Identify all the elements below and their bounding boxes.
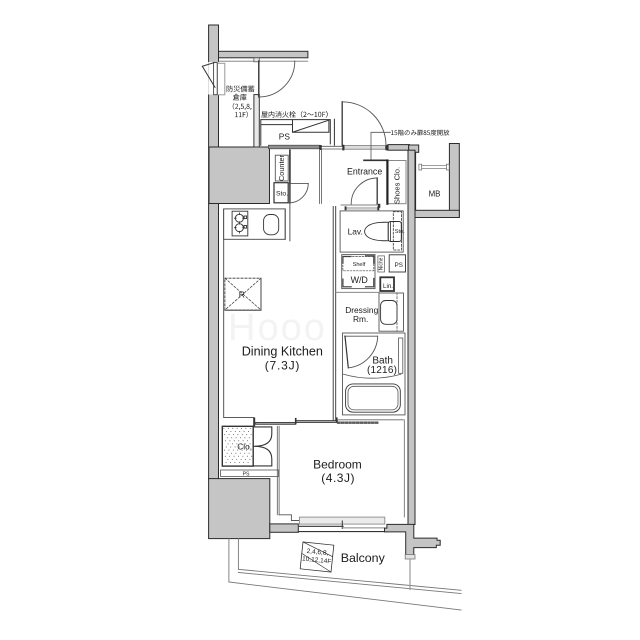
svg-text:(7.3J): (7.3J): [265, 359, 300, 373]
svg-text:Entrance: Entrance: [347, 166, 382, 176]
svg-text:PS: PS: [243, 471, 250, 477]
svg-text:PS: PS: [395, 262, 403, 269]
svg-text:Rm.: Rm.: [353, 314, 368, 324]
svg-text:Balcony: Balcony: [341, 551, 386, 565]
svg-text:Lin.: Lin.: [383, 283, 393, 290]
svg-text:Bedroom: Bedroom: [313, 457, 362, 471]
svg-text:Counter: Counter: [277, 154, 286, 181]
svg-text:MB: MB: [429, 190, 441, 199]
svg-text:(1216): (1216): [367, 365, 397, 376]
svg-text:Shelf: Shelf: [353, 262, 366, 268]
svg-text:Dining Kitchen: Dining Kitchen: [242, 344, 323, 358]
svg-text:PS: PS: [279, 132, 291, 142]
svg-text:Hooo: Hooo: [228, 307, 327, 349]
svg-text:Niche: Niche: [379, 257, 385, 270]
svg-text:(4.3J): (4.3J): [321, 471, 355, 485]
svg-text:Sto.: Sto.: [276, 190, 288, 197]
svg-text:Sto.: Sto.: [395, 229, 405, 235]
svg-text:Clo.: Clo.: [237, 442, 252, 452]
svg-text:W/D: W/D: [351, 275, 368, 285]
svg-text:Lav.: Lav.: [348, 226, 363, 236]
svg-text:R: R: [239, 289, 245, 299]
svg-text:Shoes Clo.: Shoes Clo.: [393, 167, 402, 204]
